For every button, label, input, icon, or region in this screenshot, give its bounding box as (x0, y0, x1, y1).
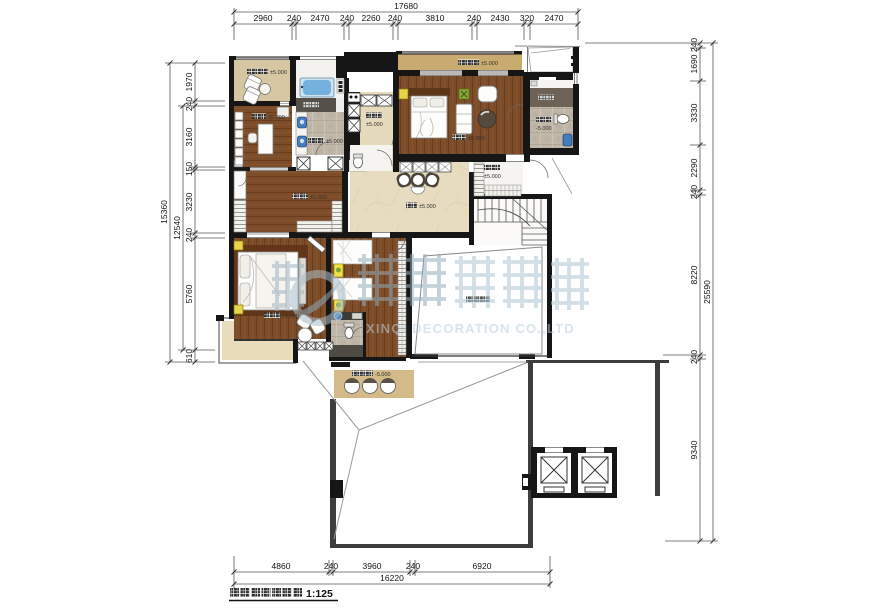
svg-text:±5.000: ±5.000 (310, 195, 327, 201)
svg-text:±5.000: ±5.000 (366, 122, 383, 128)
svg-text:-5.000: -5.000 (536, 126, 552, 132)
svg-text:8220: 8220 (689, 265, 699, 284)
svg-text:±5.000: ±5.000 (484, 174, 501, 180)
svg-text:3330: 3330 (689, 103, 699, 122)
svg-text:±5.000: ±5.000 (282, 314, 299, 320)
svg-text:1:125: 1:125 (306, 588, 333, 600)
svg-text:±5.000: ±5.000 (326, 139, 343, 145)
svg-text:3960: 3960 (363, 561, 382, 571)
svg-text:3810: 3810 (426, 13, 445, 23)
svg-text:15360: 15360 (159, 200, 169, 224)
svg-text:1690: 1690 (689, 54, 699, 73)
svg-text:6920: 6920 (473, 561, 492, 571)
svg-text:16220: 16220 (380, 573, 404, 583)
svg-text:±5.000: ±5.000 (419, 204, 436, 210)
svg-text:3230: 3230 (184, 192, 194, 211)
svg-text:25590: 25590 (702, 280, 712, 304)
svg-text:2430: 2430 (491, 13, 510, 23)
svg-text:XINQI DECORATION CO.,LTD: XINQI DECORATION CO.,LTD (366, 321, 575, 336)
svg-text:±5.000: ±5.000 (481, 61, 498, 67)
svg-text:610: 610 (184, 349, 194, 363)
svg-text:4860: 4860 (272, 561, 291, 571)
svg-text:240: 240 (406, 561, 420, 571)
svg-text:2260: 2260 (362, 13, 381, 23)
svg-text:±5.000: ±5.000 (468, 136, 485, 142)
svg-text:-5.000: -5.000 (375, 372, 391, 378)
svg-text:±5.000: ±5.000 (268, 115, 285, 121)
svg-text:2960: 2960 (254, 13, 273, 23)
svg-text:17680: 17680 (394, 1, 418, 11)
svg-text:2470: 2470 (311, 13, 330, 23)
svg-text:1970: 1970 (184, 72, 194, 91)
svg-text:2470: 2470 (545, 13, 564, 23)
svg-text:9340: 9340 (689, 440, 699, 459)
svg-text:3160: 3160 (184, 127, 194, 146)
svg-text:12540: 12540 (172, 216, 182, 240)
svg-text:±5.000: ±5.000 (270, 70, 287, 76)
svg-text:240: 240 (340, 13, 354, 23)
svg-text:5760: 5760 (184, 284, 194, 303)
svg-text:2290: 2290 (689, 158, 699, 177)
